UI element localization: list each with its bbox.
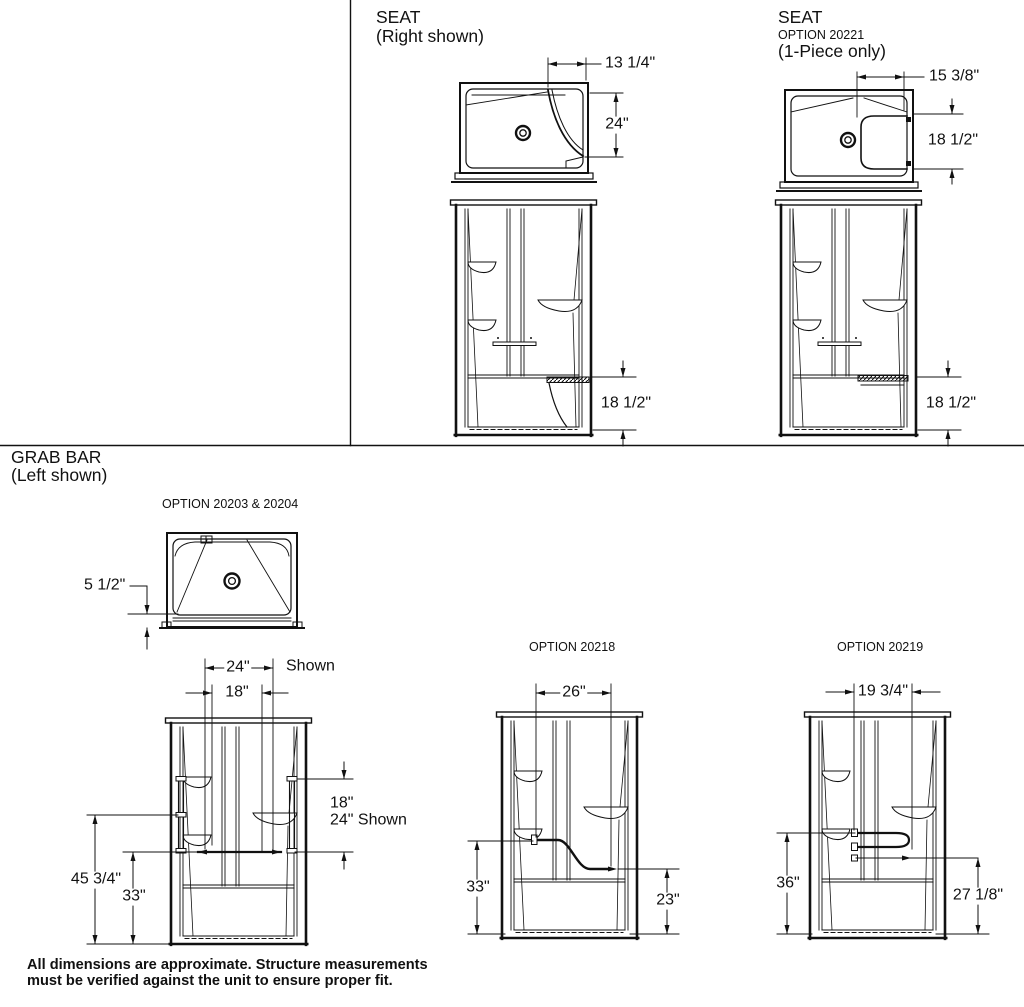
inner-wall	[466, 89, 583, 168]
option-20218-front-view	[468, 684, 679, 939]
dim-label-bar-height: 33"	[120, 889, 147, 906]
seat-top-outline	[861, 116, 907, 169]
dim-label-seat-top-depth: 24"	[603, 117, 630, 134]
seat-mount	[906, 117, 911, 122]
footnote-line-2: must be verified against the unit to ens…	[27, 973, 428, 989]
dim-label-seat-top-width: 13 1/4"	[605, 56, 655, 73]
dim-label-seat-height: 18 1/2"	[599, 396, 653, 413]
seat-section-title: SEAT	[376, 8, 420, 26]
footnote-line-1: All dimensions are approximate. Structur…	[27, 957, 428, 973]
grab-bar-horizontal	[198, 850, 281, 855]
dim-label-width-shown: 24"	[224, 660, 251, 677]
spec-sheet-page: SEAT (Right shown) SEAT OPTION 20221 (1-…	[0, 0, 1024, 1007]
dimension-curb	[128, 586, 178, 649]
option-20219-label: OPTION 20219	[837, 641, 923, 654]
dim-label-bar-drop-2: 24" Shown	[330, 813, 407, 830]
grab-bar-end-arrow	[608, 867, 617, 872]
grab-bar-section-subtitle: (Left shown)	[11, 466, 107, 484]
drain-icon	[841, 133, 855, 147]
dimension-width	[536, 684, 611, 866]
dim-label-20218-width: 26"	[560, 685, 587, 702]
dim-label-20219-width: 19 3/4"	[856, 684, 910, 701]
seat-support-curve	[549, 383, 567, 427]
seat-section-subtitle: (Right shown)	[376, 27, 484, 45]
back-wall-contour	[177, 540, 290, 612]
dim-label-bar-drop-1: 18"	[330, 796, 353, 813]
grab-bar-flange	[176, 777, 186, 782]
dimension-width	[826, 684, 940, 849]
back-wall-contour	[175, 542, 289, 556]
dim-label-20221-top-width: 15 3/8"	[929, 69, 979, 86]
dim-label-20221-seat-depth: 18 1/2"	[926, 133, 980, 150]
seat-mount	[906, 161, 911, 166]
technical-drawing	[0, 0, 1024, 1007]
grab-bar-section-title: GRAB BAR	[11, 448, 101, 466]
leader-arrow	[902, 856, 911, 861]
drain-icon	[225, 574, 240, 589]
seat-option-title: SEAT	[778, 8, 822, 26]
seat-bench	[547, 377, 589, 383]
option-20218-label: OPTION 20218	[529, 641, 615, 654]
dim-label-20218-left-height: 33"	[464, 880, 491, 897]
option-20203-20204-label: OPTION 20203 & 20204	[162, 498, 298, 511]
seat-right-top-view	[452, 58, 623, 182]
grab-bar-s-curve	[537, 840, 608, 869]
dim-label-width-alt: 18"	[223, 685, 250, 702]
footnote: All dimensions are approximate. Structur…	[27, 957, 428, 989]
dim-label-curb: 5 1/2"	[84, 578, 125, 595]
grab-bar-flange	[852, 843, 858, 851]
grab-bar-u-shape	[858, 833, 909, 847]
seat-option-subtitle: (1-Piece only)	[778, 42, 886, 60]
dim-label-total-height: 45 3/4"	[69, 872, 123, 889]
dim-label-20218-right-height: 23"	[654, 893, 681, 910]
dim-label-20219-left-height: 36"	[774, 876, 801, 893]
dim-label-shown-note: Shown	[286, 659, 335, 676]
grab-bar-flange	[287, 777, 297, 782]
grab-bar-top-view	[128, 533, 304, 649]
seat-bench	[858, 376, 908, 382]
dim-label-20219-right-height: 27 1/8"	[951, 888, 1005, 905]
inner-floor-edge	[173, 618, 291, 621]
back-wall-contour	[791, 98, 907, 112]
drain-icon	[516, 126, 530, 140]
dim-label-20221-height: 18 1/2"	[924, 396, 978, 413]
